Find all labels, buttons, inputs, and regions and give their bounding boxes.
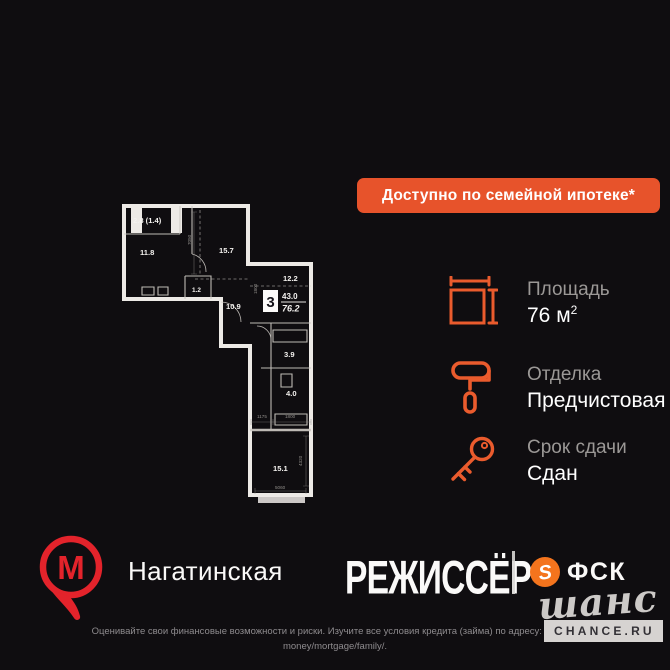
- room-label-balcony: 2.8 (1.4): [133, 216, 162, 225]
- room-label-living: 15.7: [219, 246, 234, 255]
- room-label-bedroom2: 15.1: [273, 464, 289, 473]
- watermark-script: шанс: [537, 579, 659, 625]
- paint-roller-icon: [445, 360, 501, 416]
- dim-label: 4320: [298, 455, 303, 466]
- spec-area: Площадь 76 м2: [445, 276, 610, 330]
- spec-label: Площадь: [527, 279, 610, 301]
- spec-label: Отделка: [527, 364, 665, 386]
- lower-balcony-wall: [258, 496, 305, 503]
- floor-plan: 7050 1800 1175 1800 4320 5060 2.8 (1.4) …: [95, 190, 340, 510]
- spec-finishing: Отделка Предчистовая: [445, 360, 665, 416]
- project-logo: РЕЖИССЁР: [345, 551, 531, 605]
- dim-label: 1800: [285, 414, 296, 419]
- apartment-area-badge: 3 43.0 76.2: [263, 290, 306, 314]
- room-label-closet: 1.2: [192, 287, 201, 294]
- logo-divider: [512, 551, 515, 594]
- watermark-badge: CHANCE.RU: [544, 620, 663, 642]
- rooms-count: 3: [266, 294, 274, 311]
- room-label-wc: 4.0: [286, 389, 297, 398]
- dim-label: 7050: [187, 234, 192, 245]
- living-area: 43.0: [282, 292, 298, 301]
- total-area: 76.2: [282, 304, 300, 314]
- room-label-hall: 10.9: [226, 302, 241, 311]
- metro-letter: М: [57, 549, 85, 586]
- spec-value: Предчистовая: [527, 389, 665, 412]
- spec-value: Сдан: [527, 462, 627, 485]
- room-label-room2: 12.2: [283, 274, 298, 283]
- dim-label: 1800: [253, 283, 258, 294]
- spec-completion: Срок сдачи Сдан: [445, 434, 627, 488]
- dim-label: 5060: [275, 485, 286, 490]
- metro-station-name: Нагатинская: [128, 556, 283, 587]
- dim-label: 1175: [257, 414, 267, 419]
- metro-icon: М: [32, 532, 110, 624]
- room-label-bedroom: 11.8: [140, 248, 154, 257]
- area-icon: [445, 276, 501, 330]
- family-mortgage-banner: Доступно по семейной ипотеке*: [357, 178, 660, 213]
- spec-value: 76 м2: [527, 304, 610, 327]
- spec-label: Срок сдачи: [527, 437, 627, 459]
- key-icon: [445, 434, 501, 488]
- room-label-bath: 3.9: [284, 350, 295, 359]
- banner-label: Доступно по семейной ипотеке*: [382, 187, 635, 205]
- interior-walls: [124, 206, 311, 430]
- ad-card: Доступно по семейной ипотеке*: [0, 0, 670, 670]
